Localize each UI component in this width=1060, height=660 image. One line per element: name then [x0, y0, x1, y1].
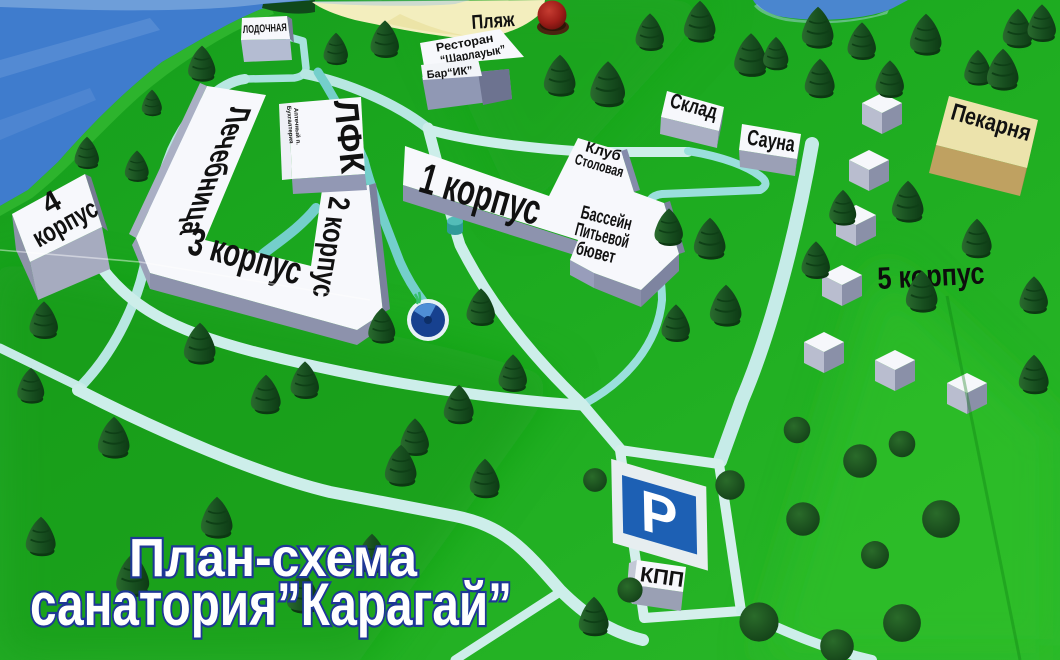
svg-text:ЛФК: ЛФК: [326, 98, 372, 175]
svg-text:P: P: [640, 477, 678, 553]
svg-text:санатория”Карагай”: санатория”Карагай”: [30, 571, 512, 638]
svg-text:ЛОДОЧНАЯ: ЛОДОЧНАЯ: [243, 22, 288, 36]
